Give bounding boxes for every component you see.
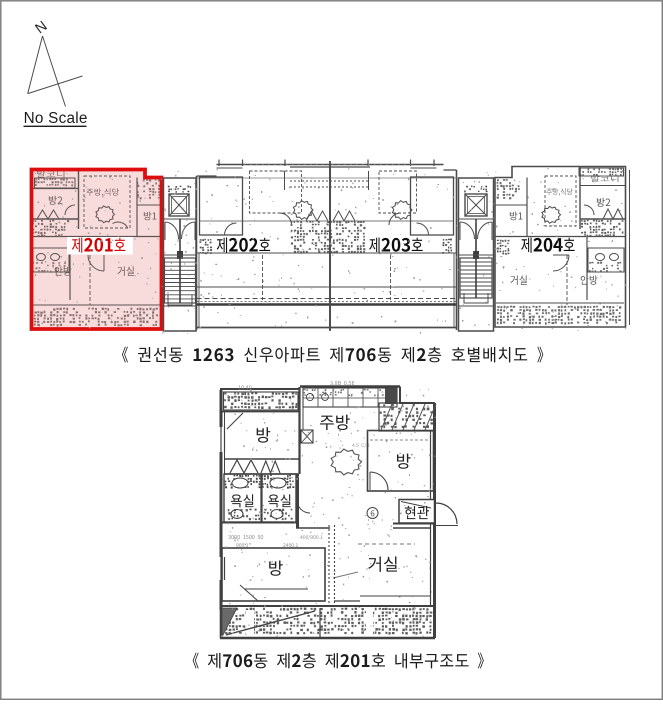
svg-text:No Scale: No Scale bbox=[24, 110, 88, 127]
